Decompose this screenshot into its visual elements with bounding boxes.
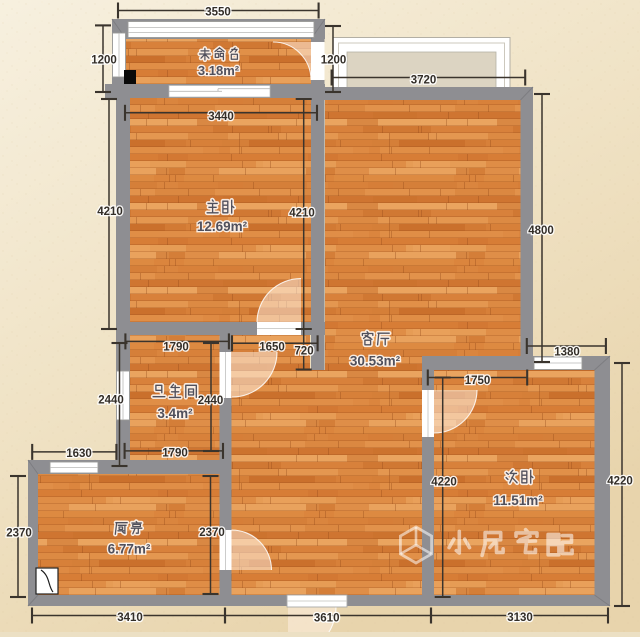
svg-text:1630: 1630: [66, 448, 92, 460]
svg-text:3720: 3720: [411, 75, 437, 87]
svg-text:2440: 2440: [198, 395, 224, 407]
svg-text:2370: 2370: [199, 527, 225, 539]
svg-text:4210: 4210: [289, 208, 315, 220]
svg-text:11.51m²: 11.51m²: [493, 493, 543, 508]
svg-text:3610: 3610: [314, 613, 340, 625]
svg-text:6.77m²: 6.77m²: [108, 542, 151, 557]
svg-text:1200: 1200: [321, 55, 347, 67]
svg-text:1750: 1750: [465, 375, 491, 387]
svg-text:1380: 1380: [554, 347, 580, 359]
svg-text:720: 720: [294, 346, 313, 358]
svg-text:3550: 3550: [205, 6, 231, 18]
svg-text:2440: 2440: [98, 395, 124, 407]
svg-text:3130: 3130: [507, 612, 533, 624]
svg-text:4220: 4220: [607, 476, 633, 488]
svg-text:4210: 4210: [97, 206, 123, 218]
svg-text:2370: 2370: [6, 528, 32, 540]
svg-text:4220: 4220: [431, 477, 457, 489]
svg-text:3.18m²: 3.18m²: [198, 63, 240, 78]
svg-text:3410: 3410: [117, 612, 143, 624]
svg-text:4800: 4800: [528, 225, 554, 237]
svg-text:12.69m²: 12.69m²: [197, 219, 248, 234]
svg-text:3440: 3440: [208, 111, 234, 123]
svg-text:1650: 1650: [259, 342, 285, 354]
svg-text:1790: 1790: [162, 448, 188, 460]
svg-text:30.53m²: 30.53m²: [350, 354, 401, 369]
svg-text:1200: 1200: [91, 55, 117, 67]
svg-text:3.4m²: 3.4m²: [157, 406, 193, 421]
svg-text:1790: 1790: [163, 342, 189, 354]
